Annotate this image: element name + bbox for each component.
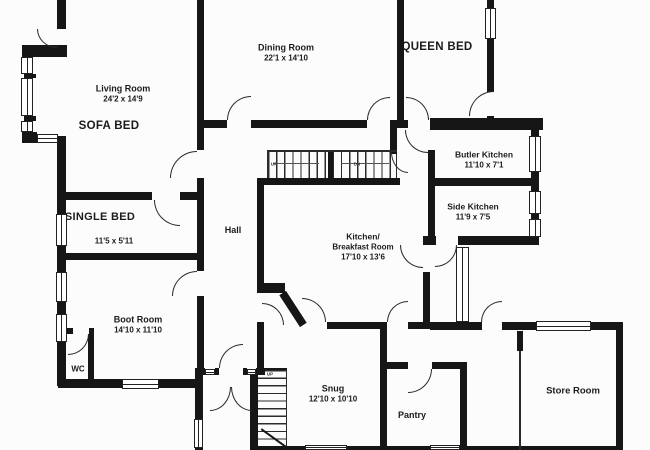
- floor-plan: Living Room 24'2 x 14'9 SOFA BED Dining …: [0, 0, 650, 450]
- room-label-single-bed: SINGLE BED: [65, 211, 135, 223]
- wall-segment: [432, 362, 467, 369]
- door-arc: [262, 303, 284, 325]
- window: [21, 57, 33, 74]
- wall-segment: [487, 116, 494, 128]
- partition-line: [267, 150, 397, 152]
- wall-segment: [423, 236, 436, 245]
- wall-segment: [423, 272, 430, 322]
- room-label-boot-room: Boot Room 14'10 x 11'10: [114, 314, 163, 337]
- room-label-kitchen-breakfast: Kitchen/ Breakfast Room 17'10 x 13'6: [332, 232, 393, 263]
- wall-segment: [428, 150, 435, 245]
- wall-segment: [195, 368, 205, 375]
- door-arc: [231, 387, 252, 411]
- wall-segment: [22, 45, 67, 57]
- door-arc: [154, 200, 180, 226]
- door-arc: [219, 344, 243, 368]
- wall-segment: [517, 331, 523, 351]
- wall-segment: [58, 192, 152, 200]
- wall-segment: [57, 302, 66, 314]
- stair-down-label: DN: [354, 162, 361, 167]
- wall-segment: [397, 0, 404, 124]
- window: [529, 136, 541, 172]
- room-label-single-bed-dims: 11'5 x 5'11: [95, 237, 134, 246]
- wall-segment: [502, 322, 536, 330]
- wall-segment: [460, 362, 467, 450]
- wall-segment: [328, 150, 333, 179]
- window: [247, 369, 256, 375]
- wall-segment: [327, 322, 380, 329]
- window: [205, 369, 215, 375]
- window: [536, 321, 591, 331]
- door-arc: [367, 97, 390, 120]
- door-arc: [481, 301, 502, 322]
- wall-segment: [22, 132, 37, 143]
- wall-segment: [257, 283, 285, 293]
- wall-segment: [460, 446, 623, 450]
- wall-segment: [58, 379, 122, 388]
- room-label-pantry: Pantry: [398, 410, 426, 420]
- window: [56, 314, 67, 342]
- door-arc: [387, 301, 408, 322]
- door-arc: [68, 334, 89, 355]
- door-arc: [406, 97, 429, 120]
- wall-segment: [531, 118, 539, 136]
- partition-line: [519, 351, 521, 450]
- door-arc: [469, 91, 494, 116]
- wall-segment: [487, 39, 494, 92]
- window: [56, 272, 67, 302]
- stair-rail: [273, 163, 319, 164]
- wall-segment: [195, 375, 203, 419]
- door-arc: [302, 298, 326, 322]
- room-label-dining-room: Dining Room 22'1 x 14'10: [258, 42, 314, 65]
- wall-segment: [387, 362, 408, 369]
- room-label-queen-bed: QUEEN BED: [401, 41, 472, 53]
- door-arc: [227, 96, 251, 120]
- wall-segment: [430, 322, 482, 330]
- door-arc: [172, 271, 197, 296]
- room-label-living-room: Living Room 24'2 x 14'9: [96, 83, 151, 106]
- door-arc: [210, 387, 231, 411]
- window: [305, 445, 347, 450]
- wall-segment: [197, 296, 204, 375]
- wall-segment: [428, 178, 539, 186]
- room-label-snug: Snug 12'10 x 10'10: [309, 383, 357, 406]
- stair-rail: [341, 163, 389, 164]
- wall-segment: [57, 136, 66, 215]
- wall-segment: [252, 446, 305, 450]
- wall-segment: [180, 192, 204, 200]
- wall-segment: [616, 322, 623, 450]
- room-label-hall: Hall: [225, 225, 242, 235]
- wall-segment: [487, 0, 494, 8]
- door-arc: [405, 130, 428, 153]
- window: [122, 379, 159, 389]
- stair-up-label: UP: [271, 162, 277, 167]
- window: [529, 219, 541, 237]
- wall-segment: [347, 446, 430, 450]
- wall-segment: [260, 178, 400, 185]
- wall-segment: [57, 0, 66, 29]
- wall-segment: [58, 253, 204, 260]
- room-label-butler-kitchen: Butler Kitchen 11'10 x 7'1: [455, 149, 513, 170]
- wall-segment: [88, 334, 94, 385]
- door-arc: [170, 151, 197, 178]
- window: [529, 191, 541, 214]
- window: [456, 247, 469, 322]
- room-label-wc: WC: [71, 365, 84, 374]
- window: [56, 214, 67, 246]
- window: [37, 134, 58, 143]
- wall-segment: [203, 120, 227, 128]
- stair-up-label: UP: [267, 372, 273, 377]
- wall-segment: [408, 322, 430, 329]
- window: [21, 121, 33, 132]
- wall-segment: [458, 236, 539, 245]
- door-arc: [435, 245, 457, 267]
- wall-segment: [251, 120, 367, 128]
- wall-segment: [380, 322, 387, 450]
- window: [21, 78, 33, 116]
- door-arc: [408, 369, 432, 393]
- window: [194, 419, 203, 448]
- window: [430, 445, 460, 450]
- room-label-sofa-bed: SOFA BED: [79, 120, 140, 132]
- window: [485, 8, 496, 39]
- door-arc: [400, 245, 423, 268]
- wall-segment: [257, 178, 264, 290]
- wall-segment: [258, 368, 287, 370]
- room-label-store-room: Store Room: [546, 386, 600, 397]
- room-label-side-kitchen: Side Kitchen 11'9 x 7'5: [447, 201, 498, 222]
- wall-segment: [215, 368, 219, 375]
